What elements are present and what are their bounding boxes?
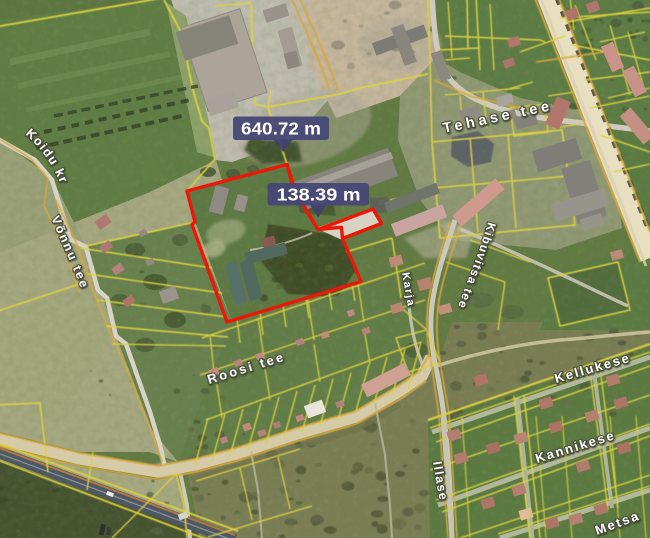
svg-text:640.72 m: 640.72 m [241,119,321,139]
svg-text:138.39 m: 138.39 m [277,185,361,205]
